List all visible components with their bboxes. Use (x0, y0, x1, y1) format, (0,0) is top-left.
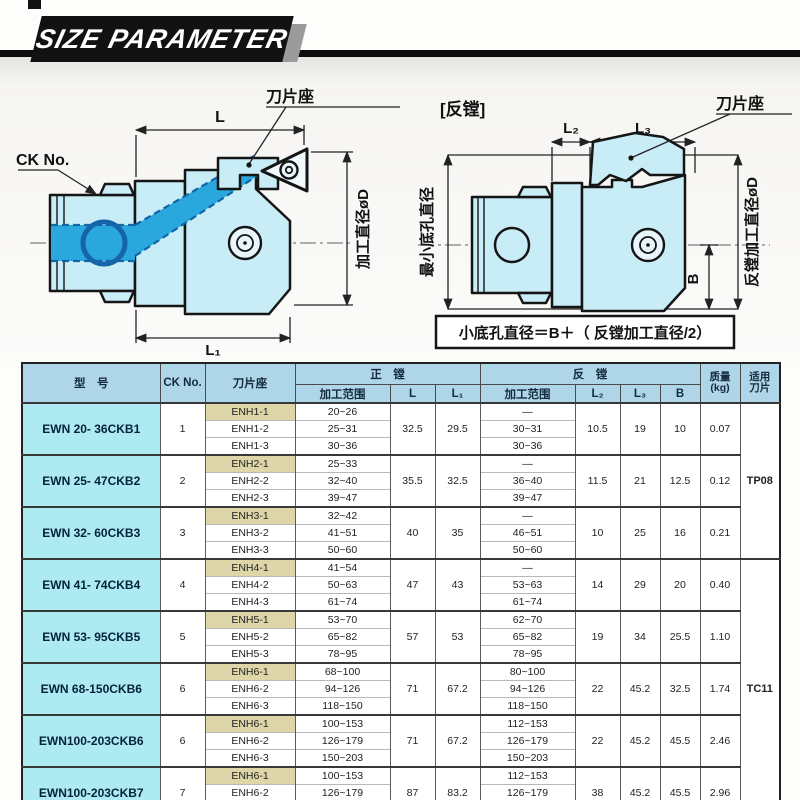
model-cell: EWN 53- 95CKB5 (22, 611, 160, 663)
dim-label-machining-diameter: 加工直径øD (354, 189, 372, 270)
fwd-range-cell: 25~33 (295, 455, 390, 473)
weight-cell: 0.12 (700, 455, 740, 507)
L1-cell: 35 (435, 507, 480, 559)
rev-range-cell: 39~47 (480, 490, 575, 508)
insert-seat-cell: ENH5-2 (205, 629, 295, 646)
weight-cell: 2.46 (700, 715, 740, 767)
L-cell: 40 (390, 507, 435, 559)
rev-range-cell: 65~82 (480, 629, 575, 646)
col-header-L: L (390, 385, 435, 404)
ck-no-label: CK No. (16, 152, 69, 169)
fwd-range-cell: 39~47 (295, 490, 390, 508)
rev-range-cell: 62~70 (480, 611, 575, 629)
L1-cell: 67.2 (435, 715, 480, 767)
fwd-range-cell: 78~95 (295, 646, 390, 664)
fwd-range-cell: 100~153 (295, 767, 390, 785)
rev-range-cell: 112~153 (480, 715, 575, 733)
insert-seat-cell: ENH5-1 (205, 611, 295, 629)
dim-label-reverse-diameter: 反镗加工直径øD (743, 177, 761, 287)
L1-cell: 83.2 (435, 767, 480, 800)
rev-range-cell: 50~60 (480, 542, 575, 560)
model-cell: EWN100-203CKB7 (22, 767, 160, 800)
insert-seat-cell: ENH1-1 (205, 403, 295, 421)
rev-range-cell: — (480, 559, 575, 577)
fwd-range-cell: 126~179 (295, 785, 390, 800)
page-title: SIZE PARAMETER (33, 24, 291, 55)
L3-cell: 19 (620, 403, 660, 455)
title-banner: SIZE PARAMETER (30, 16, 293, 62)
L-cell: 32.5 (390, 403, 435, 455)
fwd-range-cell: 41~51 (295, 525, 390, 542)
rev-range-cell: 126~179 (480, 733, 575, 750)
diagram-reverse-boring: [反镗] L₂ L₃ (400, 85, 795, 357)
insert-seat-cell: ENH4-2 (205, 577, 295, 594)
insert-seat-cell: ENH4-1 (205, 559, 295, 577)
insert-seat-cell: ENH6-1 (205, 767, 295, 785)
rev-range-cell: 118~150 (480, 698, 575, 716)
model-cell: EWN 68-150CKB6 (22, 663, 160, 715)
B-cell: 16 (660, 507, 700, 559)
applicable-insert-cell: TC11 (740, 559, 780, 800)
table-wrap: 型 号 CK No. 刀片座 正 镗 反 镗 质量 (kg) 适用 刀片 加工范 (21, 362, 781, 800)
fwd-range-cell: 94~126 (295, 681, 390, 698)
col-header-fwd-range: 加工范围 (295, 385, 390, 404)
rev-range-cell: — (480, 507, 575, 525)
L-cell: 35.5 (390, 455, 435, 507)
fwd-range-cell: 118~150 (295, 698, 390, 716)
L3-cell: 45.2 (620, 663, 660, 715)
insert-seat-cell: ENH3-1 (205, 507, 295, 525)
rev-range-cell: 36~40 (480, 473, 575, 490)
insert-seat-cell: ENH6-3 (205, 698, 295, 716)
L-cell: 57 (390, 611, 435, 663)
insert-seat-cell: ENH2-1 (205, 455, 295, 473)
flange-bottom (100, 291, 134, 302)
dim-label-B: B (685, 273, 702, 284)
ck-no-cell: 3 (160, 507, 205, 559)
rev-range-cell: — (480, 403, 575, 421)
B-cell: 32.5 (660, 663, 700, 715)
rev-range-cell: 61~74 (480, 594, 575, 612)
B-cell: 45.5 (660, 767, 700, 800)
flange-top (100, 184, 134, 195)
B-cell: 10 (660, 403, 700, 455)
size-parameter-table: 型 号 CK No. 刀片座 正 镗 反 镗 质量 (kg) 适用 刀片 加工范 (21, 362, 781, 800)
fwd-range-cell: 53~70 (295, 611, 390, 629)
rev-range-cell: — (480, 455, 575, 473)
L1-cell: 43 (435, 559, 480, 611)
fwd-range-cell: 41~54 (295, 559, 390, 577)
model-cell: EWN100-203CKB6 (22, 715, 160, 767)
rev-range-cell: 126~179 (480, 785, 575, 800)
L2-cell: 11.5 (575, 455, 620, 507)
col-header-seat: 刀片座 (205, 363, 295, 403)
fwd-range-cell: 25~31 (295, 421, 390, 438)
L2-cell: 38 (575, 767, 620, 800)
fwd-range-cell: 30~36 (295, 438, 390, 456)
col-header-rev-range: 加工范围 (480, 385, 575, 404)
dim-label-L2: L₂ (563, 120, 579, 137)
L1-cell: 67.2 (435, 663, 480, 715)
fwd-range-cell: 20~26 (295, 403, 390, 421)
L3-cell: 34 (620, 611, 660, 663)
insert-seat-cell: ENH6-3 (205, 750, 295, 768)
rev-range-cell: 150~203 (480, 750, 575, 768)
ck-no-cell: 6 (160, 715, 205, 767)
insert-screw (281, 162, 298, 179)
L-cell: 47 (390, 559, 435, 611)
dim-label-L1: L₁ (205, 342, 220, 357)
col-header-L1: L₁ (435, 385, 480, 404)
weight-cell: 1.10 (700, 611, 740, 663)
insert-seat-cell: ENH6-1 (205, 663, 295, 681)
fwd-range-cell: 68~100 (295, 663, 390, 681)
L-cell: 71 (390, 715, 435, 767)
ck-no-cell: 5 (160, 611, 205, 663)
rev-range-cell: 94~126 (480, 681, 575, 698)
fwd-range-cell: 50~60 (295, 542, 390, 560)
reverse-boring-caption: [反镗] (440, 99, 485, 119)
fwd-range-cell: 50~63 (295, 577, 390, 594)
rev-range-cell: 112~153 (480, 767, 575, 785)
fwd-range-cell: 65~82 (295, 629, 390, 646)
B-cell: 45.5 (660, 715, 700, 767)
table-row: EWN100-203CKB77ENH6-1100~1538783.2112~15… (22, 767, 780, 785)
table-row: EWN100-203CKB66ENH6-1100~1537167.2112~15… (22, 715, 780, 733)
dim-label-min-hole-diameter: 最小底孔直径 (418, 187, 436, 277)
col-header-ck: CK No. (160, 363, 205, 403)
L2-cell: 22 (575, 663, 620, 715)
table-row: EWN 20- 36CKB11ENH1-120~2632.529.5—10.51… (22, 403, 780, 421)
L-cell: 87 (390, 767, 435, 800)
formula-text: 小底孔直径＝B＋（ 反镗加工直径/2） (459, 324, 712, 342)
insert-seat-cell: ENH6-2 (205, 785, 295, 800)
model-cell: EWN 25- 47CKB2 (22, 455, 160, 507)
applicable-insert-cell: TP08 (740, 403, 780, 559)
model-cell: EWN 20- 36CKB1 (22, 403, 160, 455)
table-row: EWN 68-150CKB66ENH6-168~1007167.280~1002… (22, 663, 780, 681)
ck-no-cell: 6 (160, 663, 205, 715)
table-row: EWN 41- 74CKB44ENH4-141~544743—1429200.4… (22, 559, 780, 577)
insert-seat-cell: ENH2-3 (205, 490, 295, 508)
ck-no-cell: 1 (160, 403, 205, 455)
rev-range-cell: 46~51 (480, 525, 575, 542)
weight-cell: 0.40 (700, 559, 740, 611)
weight-cell: 0.07 (700, 403, 740, 455)
insert-seat-cell: ENH6-2 (205, 733, 295, 750)
table-row: EWN 53- 95CKB55ENH5-153~70575362~7019342… (22, 611, 780, 629)
L2-cell: 19 (575, 611, 620, 663)
table-body: EWN 20- 36CKB11ENH1-120~2632.529.5—10.51… (22, 403, 780, 800)
B-cell: 25.5 (660, 611, 700, 663)
insert-seat-cell: ENH4-3 (205, 594, 295, 612)
insert-seat-label: 刀片座 (716, 94, 764, 113)
col-header-B: B (660, 385, 700, 404)
diagram-forward-boring: L L₁ 加工直径øD CK No. 刀片座 (8, 85, 400, 357)
insert-seat-cell: ENH3-2 (205, 525, 295, 542)
catalog-page: SIZE PARAMETER (0, 0, 800, 800)
fwd-range-cell: 126~179 (295, 733, 390, 750)
table-row: EWN 32- 60CKB33ENH3-132~424035—1025160.2… (22, 507, 780, 525)
L2-cell: 14 (575, 559, 620, 611)
insert-header-line2: 刀片 (741, 383, 780, 394)
L3-cell: 45.2 (620, 767, 660, 800)
L3-cell: 21 (620, 455, 660, 507)
L1-cell: 32.5 (435, 455, 480, 507)
L3-cell: 29 (620, 559, 660, 611)
col-header-L2: L₂ (575, 385, 620, 404)
insert-seat-cell: ENH6-2 (205, 681, 295, 698)
L3-cell: 25 (620, 507, 660, 559)
weight-cell: 0.21 (700, 507, 740, 559)
insert-seat-cell: ENH3-3 (205, 542, 295, 560)
rev-range-cell: 78~95 (480, 646, 575, 664)
col-header-weight: 质量 (kg) (700, 363, 740, 403)
fwd-range-cell: 32~40 (295, 473, 390, 490)
table-head: 型 号 CK No. 刀片座 正 镗 反 镗 质量 (kg) 适用 刀片 加工范 (22, 363, 780, 403)
col-header-insert: 适用 刀片 (740, 363, 780, 403)
col-header-model: 型 号 (22, 363, 160, 403)
col-header-L3: L₃ (620, 385, 660, 404)
L2-cell: 10.5 (575, 403, 620, 455)
rev-range-cell: 53~63 (480, 577, 575, 594)
rev-range-cell: 80~100 (480, 663, 575, 681)
flange-top (518, 187, 551, 197)
fwd-range-cell: 32~42 (295, 507, 390, 525)
weight-header-line2: (kg) (701, 383, 740, 394)
L1-cell: 29.5 (435, 403, 480, 455)
L1-cell: 53 (435, 611, 480, 663)
insert-seat-cell: ENH2-2 (205, 473, 295, 490)
weight-cell: 1.74 (700, 663, 740, 715)
table-row: EWN 25- 47CKB22ENH2-125~3335.532.5—11.52… (22, 455, 780, 473)
fwd-range-cell: 61~74 (295, 594, 390, 612)
L2-cell: 10 (575, 507, 620, 559)
ck-no-cell: 7 (160, 767, 205, 800)
model-cell: EWN 41- 74CKB4 (22, 559, 160, 611)
B-cell: 12.5 (660, 455, 700, 507)
rev-range-cell: 30~31 (480, 421, 575, 438)
weight-cell: 2.96 (700, 767, 740, 800)
L2-cell: 22 (575, 715, 620, 767)
insert-seat-cell: ENH6-1 (205, 715, 295, 733)
L3-cell: 45.2 (620, 715, 660, 767)
insert-seat-cell: ENH1-3 (205, 438, 295, 456)
B-cell: 20 (660, 559, 700, 611)
flange-bottom (518, 293, 551, 303)
body-step (552, 183, 582, 307)
rev-range-cell: 30~36 (480, 438, 575, 456)
insert-seat-cell: ENH1-2 (205, 421, 295, 438)
fwd-range-cell: 100~153 (295, 715, 390, 733)
fwd-range-cell: 150~203 (295, 750, 390, 768)
diagram-area: L L₁ 加工直径øD CK No. 刀片座 (0, 85, 800, 362)
col-header-reverse-boring: 反 镗 (480, 363, 700, 385)
ck-no-cell: 2 (160, 455, 205, 507)
model-cell: EWN 32- 60CKB3 (22, 507, 160, 559)
corner-mark (28, 0, 41, 9)
L-cell: 71 (390, 663, 435, 715)
insert-seat-cell: ENH5-3 (205, 646, 295, 664)
ck-no-cell: 4 (160, 559, 205, 611)
col-header-forward-boring: 正 镗 (295, 363, 480, 385)
insert-seat-label: 刀片座 (266, 87, 314, 106)
dim-label-L: L (215, 109, 225, 126)
